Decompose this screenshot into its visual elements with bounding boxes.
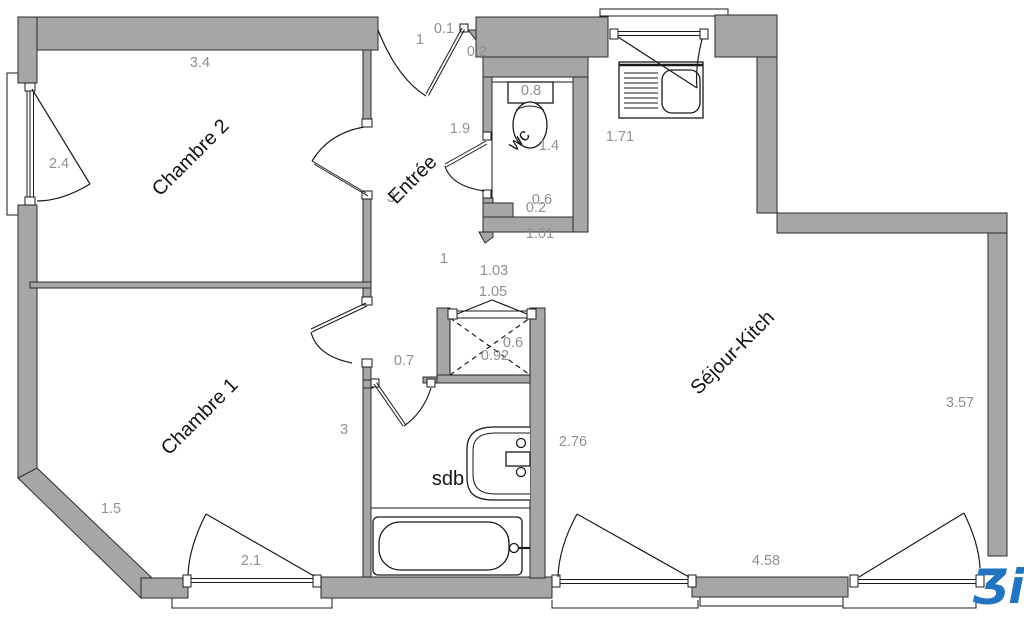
dim-label: 0.2 <box>467 44 487 60</box>
wall-hall-left-d <box>363 367 371 578</box>
window-sejour-left <box>552 514 696 587</box>
wall-partition-chambres <box>30 282 371 288</box>
dim-label: 0.8 <box>521 83 541 99</box>
wall-right-step <box>777 213 1007 233</box>
dim-label: 1.05 <box>479 284 507 300</box>
wall-left-upper <box>18 17 37 83</box>
dim-label: 1.4 <box>539 138 559 154</box>
dim-label: 3 <box>340 422 348 438</box>
wall-hall-left-a <box>363 50 371 119</box>
wall-hall-left-b <box>363 199 371 282</box>
wall-bottom-left <box>141 578 188 598</box>
room-label-chambre1: Chambre 1 <box>157 374 243 460</box>
door-sdb <box>371 379 435 426</box>
door-chambre2 <box>312 119 372 199</box>
floor-plan-drawing: 1.72 <box>0 0 1024 618</box>
agency-logo: Ʒi <box>972 560 1024 615</box>
sill-center <box>700 597 843 606</box>
wall-bottom-mid <box>321 577 552 598</box>
window-sejour-right <box>850 513 984 587</box>
dim-label: 1.03 <box>480 263 508 279</box>
wall-top-left <box>18 17 378 50</box>
dim-label: 2.1 <box>241 553 261 569</box>
kitchen-sink-icon <box>619 62 703 118</box>
room-label-chambre2: Chambre 2 <box>148 115 234 201</box>
wall-diagonal <box>18 468 152 598</box>
dim-label: 1.5 <box>101 501 121 517</box>
dim-label: 1.71 <box>606 129 634 145</box>
room-labels: Chambre 2 Chambre 1 Entrée wc sdb Séjour… <box>148 115 779 490</box>
room-label-entree: Entrée <box>384 151 441 208</box>
entry-landing <box>600 9 728 16</box>
window-reveal-left <box>7 73 27 215</box>
dim-label: 2.76 <box>559 434 587 450</box>
sill-sejour-right <box>843 600 976 608</box>
sill-sejour-left <box>552 600 698 608</box>
dim-label: 1 <box>416 32 424 48</box>
wall-wc-left <box>483 77 492 132</box>
dim-label: 1.01 <box>526 226 554 242</box>
sill-chambre1 <box>172 597 332 608</box>
dim-label: 1 <box>440 251 448 267</box>
wall-right <box>988 233 1007 556</box>
door-wc <box>445 132 491 198</box>
dim-label: 3.57 <box>946 395 974 411</box>
room-label-sejour: Séjour-Kitch <box>686 306 779 399</box>
bathtub-icon <box>373 517 530 575</box>
wall-closet-bottom <box>437 375 530 383</box>
dim-label: 3.4 <box>190 55 210 71</box>
wall-hall-left-c <box>363 288 371 297</box>
wall-wc-tab <box>479 232 493 243</box>
wall-top-right-block <box>715 15 777 57</box>
wall-wc-right <box>573 77 588 232</box>
dim-label: 4.58 <box>752 553 780 569</box>
dim-label: 1.9 <box>450 121 470 137</box>
floor-plan: 1.72 <box>0 0 1024 618</box>
dim-label: 2.4 <box>49 156 69 172</box>
wall-above-wc <box>476 17 608 57</box>
wall-bottom-center-block <box>692 577 848 597</box>
room-label-sdb: sdb <box>432 468 464 490</box>
dim-label: 0.92 <box>481 348 509 364</box>
washbasin-icon <box>467 427 530 500</box>
dim-label: 0.1 <box>434 21 454 37</box>
window-chambre2 <box>25 83 90 205</box>
wall-wc-top <box>483 57 588 77</box>
wall-sejour-left <box>530 308 545 578</box>
wall-left-mid <box>18 205 37 478</box>
dim-label: 0.2 <box>526 200 546 216</box>
window-chambre1 <box>183 514 321 587</box>
wall-right-upper <box>757 57 777 213</box>
door-chambre1 <box>311 297 372 367</box>
dim-label: 0.7 <box>394 353 414 369</box>
